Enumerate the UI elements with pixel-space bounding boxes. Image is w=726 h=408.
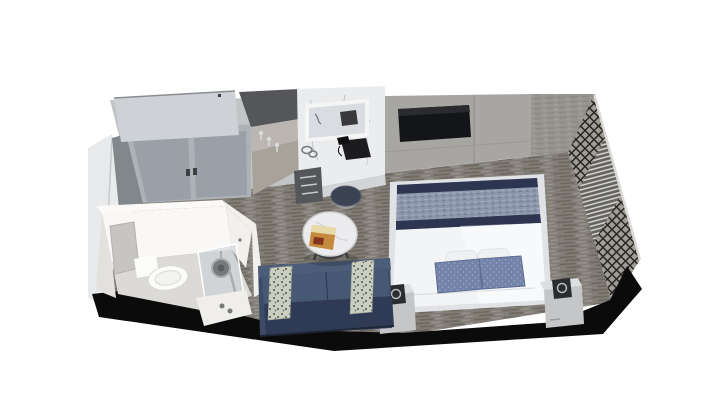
tv — [398, 105, 471, 142]
wardrobe-top-panel — [114, 91, 239, 142]
wardrobe-handle — [186, 169, 190, 176]
stateroom-svg — [0, 0, 726, 408]
sofa-pillow-left — [268, 266, 292, 320]
bathroom-door-handle — [238, 238, 241, 241]
hook-icon — [259, 131, 263, 135]
mirror-phone-reflection — [340, 110, 358, 126]
blue-pillow — [479, 256, 525, 289]
hook-icon — [267, 137, 271, 141]
wardrobe — [112, 91, 251, 209]
sofa-pillow-right — [350, 260, 374, 314]
shower-control — [228, 309, 233, 314]
magazine-photo — [313, 237, 324, 245]
nightstand-right — [540, 278, 584, 328]
sofa — [258, 258, 394, 336]
nightstand-detail — [550, 319, 560, 320]
showerhead-center — [218, 265, 225, 272]
wardrobe-latch — [218, 94, 221, 97]
wardrobe-door-right — [194, 131, 247, 198]
hook-icon — [275, 143, 279, 147]
blue-pillow — [435, 259, 482, 293]
lamp — [552, 278, 572, 299]
mirror-cabinet — [110, 222, 139, 274]
shower-control — [220, 304, 225, 309]
stool-seat — [331, 186, 361, 206]
coffee-table — [303, 212, 358, 266]
wardrobe-handle — [193, 168, 197, 175]
stateroom-render — [0, 0, 726, 408]
